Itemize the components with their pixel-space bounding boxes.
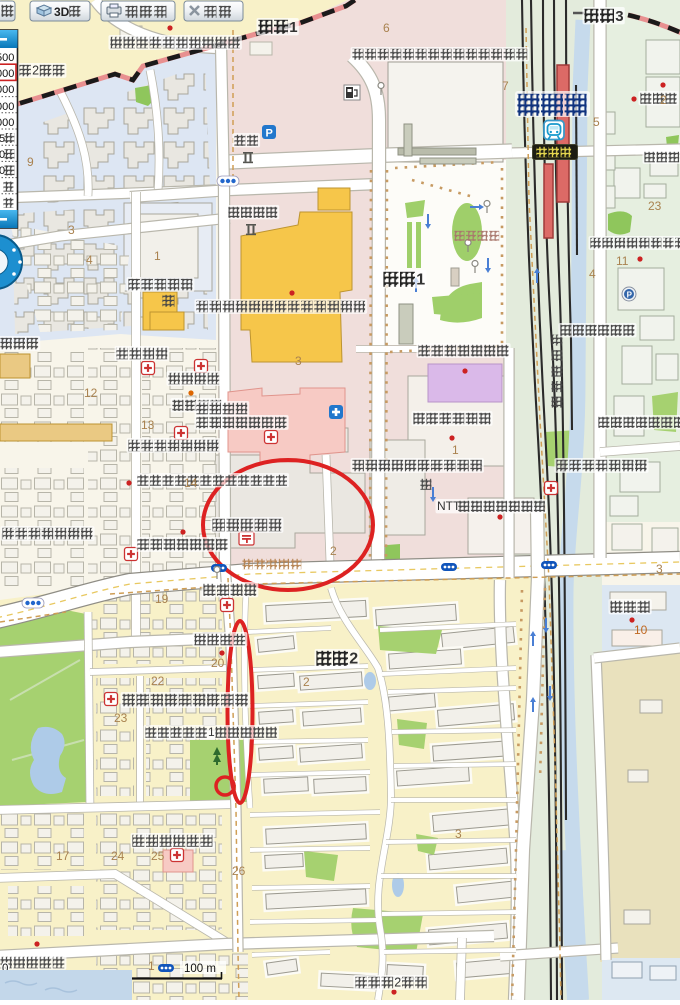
svg-text:23: 23 (114, 711, 128, 725)
svg-text:2: 2 (660, 93, 667, 107)
svg-text:1: 1 (148, 959, 155, 973)
svg-text:3: 3 (295, 354, 302, 368)
svg-text:2: 2 (330, 544, 337, 558)
svg-text:3: 3 (656, 562, 663, 576)
svg-text:14: 14 (184, 476, 198, 490)
svg-text:5: 5 (0, 133, 5, 145)
svg-text:24: 24 (111, 849, 125, 863)
svg-text:10: 10 (634, 623, 648, 637)
svg-text:2: 2 (349, 651, 358, 668)
svg-text:6: 6 (383, 21, 390, 35)
svg-text:5: 5 (593, 115, 600, 129)
svg-text:26: 26 (232, 864, 246, 878)
svg-text:4: 4 (589, 267, 596, 281)
svg-text:1: 1 (416, 272, 425, 289)
svg-text:100 m: 100 m (184, 963, 216, 975)
svg-text:2: 2 (303, 675, 310, 689)
svg-text:000: 000 (0, 117, 14, 129)
svg-text:23: 23 (648, 199, 662, 213)
svg-text:12: 12 (84, 386, 98, 400)
svg-text:P: P (266, 128, 273, 140)
svg-text:11: 11 (616, 254, 629, 268)
svg-text:3: 3 (615, 8, 623, 25)
svg-text:17: 17 (56, 849, 70, 863)
svg-text:9: 9 (27, 155, 34, 169)
svg-text:4: 4 (86, 253, 93, 267)
svg-text:1: 1 (452, 443, 459, 457)
svg-text:000: 000 (0, 84, 14, 96)
svg-text:1: 1 (289, 19, 297, 36)
svg-text:22: 22 (151, 674, 165, 688)
svg-text:25: 25 (151, 849, 165, 863)
svg-text:500: 500 (0, 52, 14, 64)
svg-text:000: 000 (0, 68, 14, 80)
svg-text:3D: 3D (54, 5, 70, 19)
svg-text:000: 000 (0, 101, 14, 113)
svg-text:3: 3 (455, 827, 462, 841)
svg-text:19: 19 (155, 592, 169, 606)
svg-text:2: 2 (394, 976, 401, 990)
svg-text:0: 0 (0, 165, 5, 177)
svg-text:0: 0 (0, 149, 5, 161)
svg-text:1: 1 (208, 725, 215, 739)
svg-text:13: 13 (141, 418, 155, 432)
svg-text:NTT: NTT (437, 499, 461, 513)
svg-text:P: P (627, 291, 633, 300)
svg-text:20: 20 (211, 656, 225, 670)
svg-text:7: 7 (502, 79, 509, 93)
svg-text:1: 1 (154, 249, 161, 263)
svg-text:3: 3 (68, 223, 75, 237)
svg-text:2: 2 (32, 64, 39, 78)
